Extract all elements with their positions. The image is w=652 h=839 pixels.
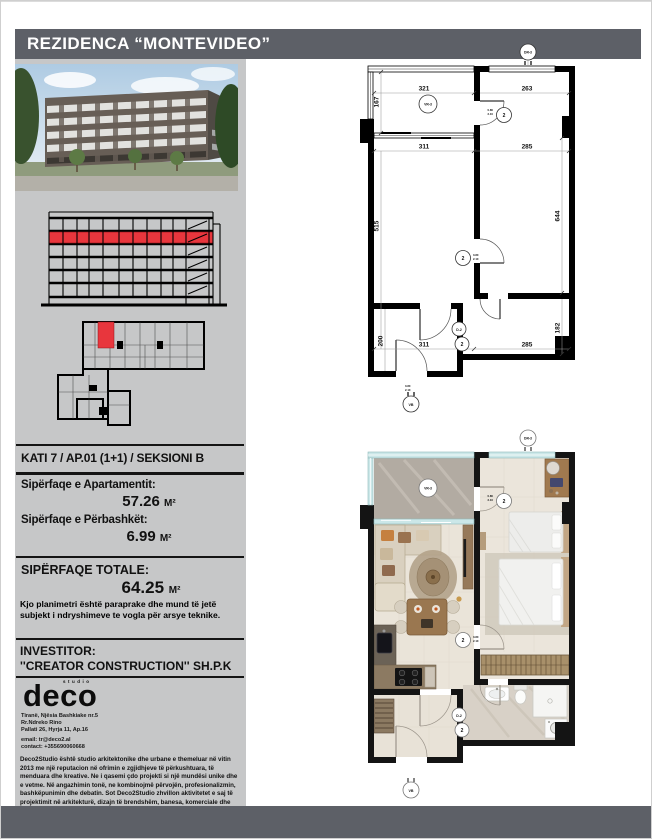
wardrobe [481,655,569,675]
svg-text:DR-3: DR-3 [524,51,532,55]
svg-text:263: 263 [522,86,533,93]
svg-text:D-2: D-2 [456,328,462,332]
svg-text:2.10: 2.10 [488,498,494,502]
svg-text:2.10: 2.10 [473,639,479,643]
svg-text:VB: VB [409,789,414,793]
area-label-apartment: Sipërfaqe e Apartamentit: [21,479,156,491]
door-arcs [396,101,504,371]
svg-text:321: 321 [419,86,430,93]
total-unit: M² [169,585,181,596]
svg-text:167: 167 [374,96,381,107]
walls [360,66,575,377]
area-unit: M² [164,498,176,509]
building-section-drawing [41,204,227,316]
divider [16,444,244,446]
windows [368,66,555,139]
investor-name: ''CREATOR CONSTRUCTION'' SH.P.K [20,659,231,673]
total-number: 64.25 [122,578,165,597]
dimension-ticks [372,70,571,356]
building-render-photo [15,64,238,191]
svg-text:VR-3: VR-3 [424,103,432,107]
divider [16,638,244,640]
area-unit: M² [160,533,172,544]
svg-text:285: 285 [522,342,533,349]
hall-radiator [374,699,394,733]
svg-text:2: 2 [461,342,464,348]
studio-email: email: tr@deco2.al [21,737,85,744]
rendered-floor-plan: DR-3 VR-3 2 0.80 2.10 2 0.80 2.10 D-2 2 … [359,427,589,805]
studio-address: Tiranë, Njësia Bashkiake nr.5 Rr.Ndreko … [21,713,98,734]
dimension-lines [374,60,569,371]
svg-text:2.10: 2.10 [473,257,479,261]
svg-text:182: 182 [555,322,562,333]
studio-logo-subtext: studio [63,679,92,684]
divider [16,472,244,475]
area-value-common: 6.99 M² [61,528,237,545]
svg-text:2.10: 2.10 [488,112,494,116]
disclaimer-note: Kjo planimetri është paraprake dhe mund … [20,599,234,620]
divider [16,556,244,558]
studio-contacts: email: tr@deco2.al contact: +35569006066… [21,737,85,751]
area-number: 6.99 [126,528,155,545]
svg-text:644: 644 [555,210,562,221]
svg-text:200: 200 [378,335,385,346]
address-line: Tiranë, Njësia Bashkiake nr.5 [21,713,98,720]
unit-heading: KATI 7 / AP.01 (1+1) / SEKSIONI B [21,451,204,465]
svg-text:DR-3: DR-3 [524,437,532,441]
studio-logo: deco studio [23,682,97,711]
area-label-common: Sipërfaqe e Përbashkët: [21,514,147,526]
key-plan-outline [58,322,204,425]
svg-text:2: 2 [461,728,464,734]
svg-text:2: 2 [462,256,465,262]
svg-text:311: 311 [419,144,430,151]
studio-phone: contact: +355690060668 [21,744,85,751]
key-floor-plan [55,317,211,431]
key-plan-cores [89,341,163,415]
area-number: 57.26 [122,493,160,510]
footer-bar [1,806,652,839]
page-title: REZIDENCA “MONTEVIDEO” [15,34,270,54]
address-line: Rr.Ndreko Rino [21,720,98,727]
svg-text:VR-3: VR-3 [424,487,432,491]
technical-floor-plan: 321 263 311 285 311 285 167 515 200 644 … [359,41,589,419]
dimension-labels: 321 263 311 285 311 285 167 515 200 644 … [374,86,562,349]
investor-label: INVESTITOR: [20,644,96,658]
total-area-value: 64.25 M² [61,578,241,598]
address-line: Pallati 26, Hyrja 11, Ap.16 [21,727,98,734]
svg-text:2: 2 [503,113,506,119]
svg-text:2: 2 [462,638,465,644]
svg-text:515: 515 [374,220,381,231]
area-value-apartment: 57.26 M² [61,493,237,510]
plan-sheet-page: REZIDENCA “MONTEVIDEO” [0,0,652,839]
svg-text:D-2: D-2 [456,714,462,718]
svg-text:311: 311 [419,342,430,349]
svg-text:2: 2 [503,499,506,505]
svg-text:285: 285 [522,144,533,151]
total-area-label: SIPËRFAQE TOTALE: [21,563,149,577]
svg-text:2.10: 2.10 [405,388,411,392]
page-top-divider [1,1,652,2]
section-floor-slabs [49,218,213,297]
highlighted-unit [98,322,114,348]
svg-text:VB: VB [409,403,414,407]
